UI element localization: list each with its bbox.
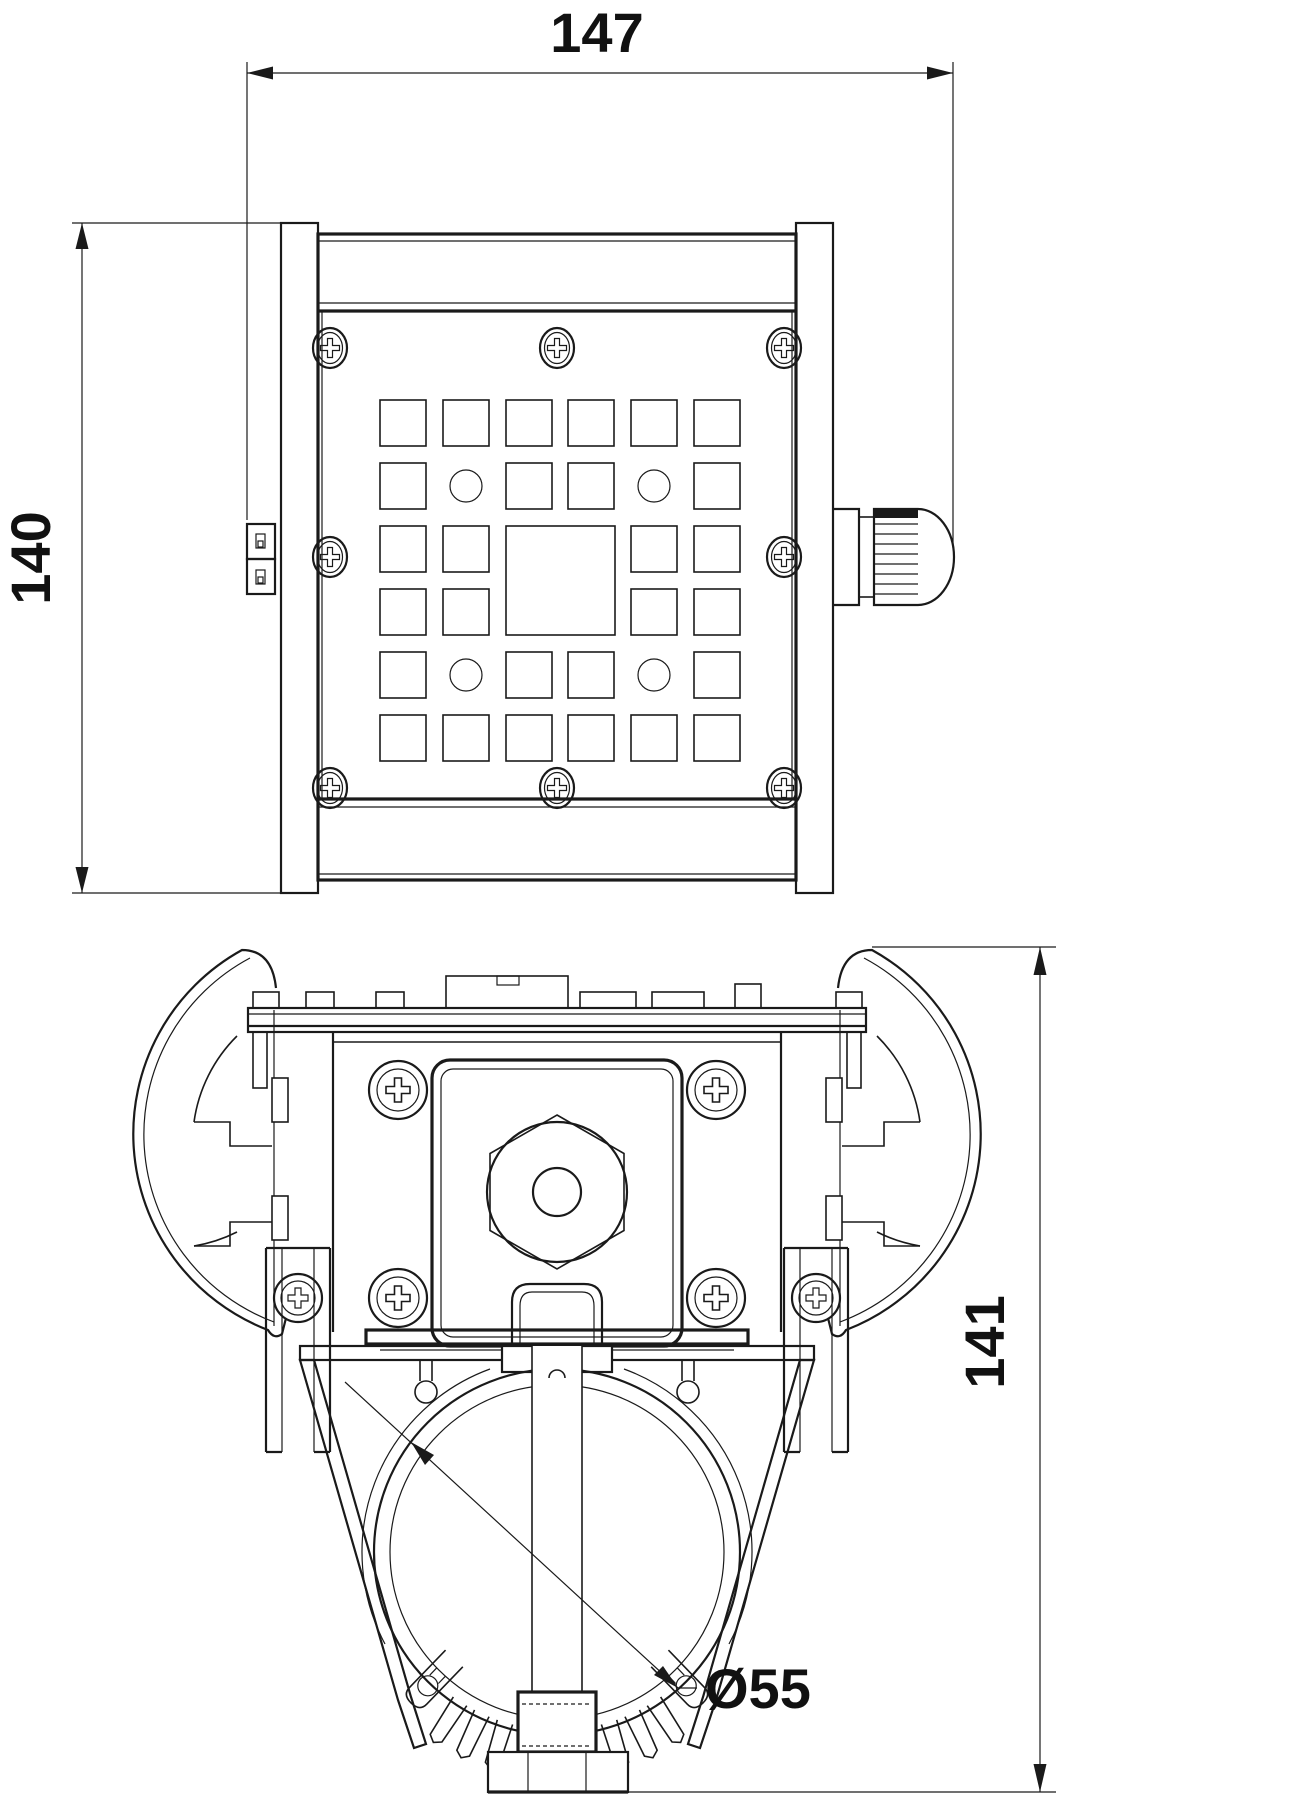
led-cell — [380, 715, 426, 761]
phillips-screw-icon — [767, 768, 801, 808]
phillips-screw-icon — [313, 537, 347, 577]
sensor-hole — [450, 470, 482, 502]
phillips-screw-icon — [313, 328, 347, 368]
section-view — [133, 950, 980, 1792]
rail-tooth — [306, 992, 334, 1008]
arrowhead-icon — [76, 867, 89, 893]
connector-pin-tip — [258, 541, 263, 547]
arrowhead-icon — [247, 67, 273, 80]
body-outline — [318, 234, 796, 880]
gland-block — [518, 1692, 596, 1752]
terminal-connector — [247, 524, 275, 594]
led-cell — [443, 526, 489, 572]
section-right-half — [577, 950, 981, 1777]
extension-lines — [247, 62, 953, 548]
bezel-band-bold — [318, 311, 796, 799]
led-cell — [568, 715, 614, 761]
phillips-screw-icon — [767, 537, 801, 577]
led-cell — [631, 715, 677, 761]
sensor-hole — [450, 659, 482, 691]
rail-tooth — [376, 992, 404, 1008]
center-boss-strip — [532, 1346, 582, 1692]
driver-box-inner — [441, 1069, 673, 1337]
led-cell — [380, 652, 426, 698]
led-cell — [380, 589, 426, 635]
dim-width-value: 147 — [550, 1, 643, 64]
section-left-half — [133, 950, 537, 1777]
gland-flange — [488, 1752, 628, 1792]
arrowhead-icon — [1034, 947, 1047, 975]
arrowhead-icon — [927, 67, 953, 80]
rail-bar — [248, 1008, 866, 1032]
rail-tooth — [836, 992, 862, 1008]
led-cell — [506, 715, 552, 761]
drawing-sheet: 147 140 — [0, 0, 1303, 1800]
center-led-module — [506, 526, 615, 635]
led-cell — [568, 400, 614, 446]
led-cell — [631, 526, 677, 572]
dimension-height-140: 140 — [0, 223, 285, 893]
led-cell — [568, 463, 614, 509]
rail-tooth — [735, 984, 761, 1008]
nut-center-hole — [533, 1168, 581, 1216]
dimension-width-147: 147 — [247, 1, 953, 548]
arrowhead-icon — [1034, 1764, 1047, 1792]
front-view — [247, 223, 954, 893]
led-cell — [694, 652, 740, 698]
mounting-bracket — [333, 1032, 781, 1350]
led-cell — [380, 400, 426, 446]
led-cell — [506, 400, 552, 446]
box-arch-inner — [520, 1292, 594, 1346]
led-cell — [694, 715, 740, 761]
phillips-screw-icon — [767, 328, 801, 368]
dim-section-height-value: 141 — [953, 1295, 1016, 1388]
led-cell — [631, 400, 677, 446]
dim-diameter-value: Ø55 — [705, 1657, 811, 1720]
cable-gland — [833, 509, 954, 605]
nut-hexagon — [490, 1115, 624, 1269]
driver-box — [432, 1060, 682, 1346]
led-cell — [694, 463, 740, 509]
swivel-nut — [487, 1115, 627, 1269]
led-grid — [380, 400, 740, 761]
led-cell — [443, 715, 489, 761]
led-cell — [506, 652, 552, 698]
led-cell — [443, 589, 489, 635]
connector-pin-tip — [258, 577, 263, 583]
arrowhead-icon — [76, 223, 89, 249]
sensor-hole — [638, 470, 670, 502]
phillips-screw-icon — [313, 768, 347, 808]
rail-center-block — [446, 976, 568, 1008]
bezel-side-lines — [322, 311, 792, 799]
arrowhead-icon — [411, 1442, 434, 1465]
led-cell — [631, 589, 677, 635]
bracket-sides — [333, 1032, 781, 1332]
gland-top-band — [874, 509, 918, 518]
rail-tooth — [652, 992, 704, 1008]
gland-barrel — [859, 517, 874, 597]
rail-block-notch — [497, 976, 519, 985]
bezel-band-thin — [318, 303, 796, 807]
led-cell — [568, 652, 614, 698]
strip-mask — [532, 1346, 582, 1692]
mounting-rail — [248, 976, 866, 1032]
sensor-hole — [638, 659, 670, 691]
led-cell — [443, 400, 489, 446]
phillips-screw-icon — [540, 328, 574, 368]
phillips-screw-icon — [540, 768, 574, 808]
driver-box-outline — [432, 1060, 682, 1346]
rail-tooth — [580, 992, 636, 1008]
led-cell — [694, 526, 740, 572]
led-cell — [694, 589, 740, 635]
technical-drawing: 147 140 — [0, 0, 1303, 1800]
led-cell — [380, 526, 426, 572]
dim-height-value: 140 — [0, 511, 62, 604]
gland-ribs — [874, 524, 918, 594]
rail-tooth — [253, 992, 279, 1008]
led-cell — [380, 463, 426, 509]
led-cell — [694, 400, 740, 446]
gland-flange — [833, 509, 859, 605]
led-cell — [506, 463, 552, 509]
